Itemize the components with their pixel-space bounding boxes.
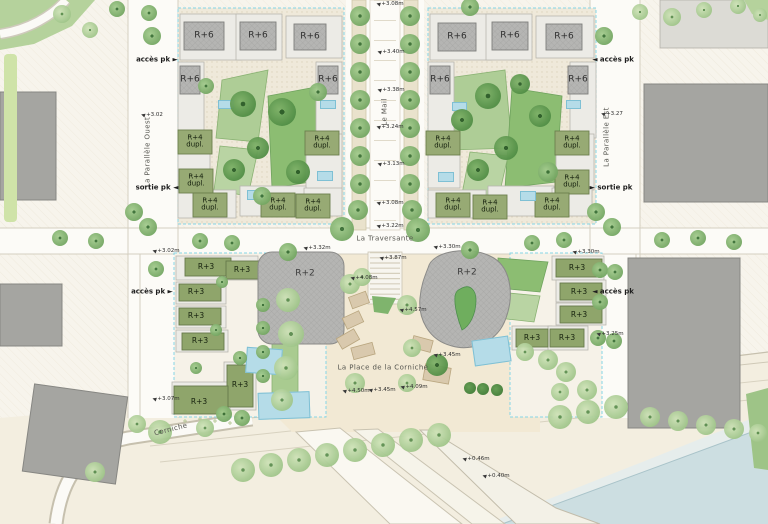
tree [654, 232, 670, 248]
tree [143, 27, 161, 45]
building-label-r6: R+6 [248, 31, 268, 40]
spot-elevation: +3.30m [572, 249, 599, 255]
spot-elevation: +3.32m [303, 245, 330, 251]
parking-access-label: ► sortie pk [590, 184, 633, 191]
elevation-marker-icon [377, 49, 382, 54]
elevation-value: +4.08m [355, 275, 377, 281]
building-label-r3: R+3 [188, 312, 204, 320]
building-label-r6: R+6 [180, 75, 200, 84]
building-label-r4: R+4 dupl. [563, 136, 581, 151]
elevation-value: +3.02m [157, 248, 179, 254]
street-name-parallele-ouest: La Parallèle Ouest [144, 117, 151, 187]
tree [231, 458, 255, 482]
tree [494, 136, 518, 160]
building-label-r3: R+3 [192, 337, 208, 345]
elevation-value: +3.32m [308, 245, 330, 251]
building-label-r3: R+3 [234, 266, 250, 274]
spot-elevation: +3.08m [376, 200, 403, 206]
elevation-marker-icon [377, 87, 382, 92]
tree [216, 406, 232, 422]
elevation-marker-icon [482, 473, 487, 478]
elevation-value: +3.27 [606, 111, 623, 117]
building-label-r4: R+4 dupl. [434, 136, 452, 151]
parking-access-label: accès pk ► [131, 288, 173, 295]
tree [53, 5, 71, 23]
tree [343, 438, 367, 462]
tree [753, 8, 767, 22]
tree [348, 200, 368, 220]
elevation-value: +3.87m [384, 255, 406, 261]
tree [148, 261, 164, 277]
tree [696, 2, 712, 18]
tree [529, 105, 551, 127]
tree [556, 362, 576, 382]
tree [724, 419, 744, 439]
building-label-r3: R+3 [198, 263, 214, 271]
elevation-value: +0.46m [467, 456, 489, 462]
building-label-r3: R+3 [559, 334, 575, 342]
tree [247, 137, 269, 159]
swimming-pool [566, 100, 581, 109]
elevation-value: +3.45m [373, 387, 395, 393]
building-label-r4: R+4 dupl. [269, 198, 287, 213]
elevation-marker-icon [303, 245, 308, 250]
swimming-pool [438, 172, 454, 182]
parking-access-label: ◄ accès pk [592, 288, 634, 295]
tree [400, 6, 420, 26]
tree [276, 288, 300, 312]
elevation-marker-icon [399, 307, 404, 312]
tree [576, 400, 600, 424]
tree [268, 98, 296, 126]
tree [538, 162, 558, 182]
tree [230, 91, 256, 117]
spot-elevation: +3.08m [376, 1, 403, 7]
street-name-la-traversante: La Traversante [356, 235, 413, 242]
elevation-value: +3.45m [438, 352, 460, 358]
tree [464, 382, 476, 394]
spot-elevation: +3.27 [601, 111, 623, 117]
tree [330, 217, 354, 241]
tree [350, 6, 370, 26]
elevation-value: +4.50m [347, 388, 369, 394]
elevation-value: +3.08m [381, 1, 403, 7]
tree [371, 433, 395, 457]
tree [224, 235, 240, 251]
tree [524, 235, 540, 251]
elevation-value: +3.07m [157, 396, 179, 402]
tree [216, 276, 228, 288]
swimming-pool [471, 336, 511, 367]
tree [190, 362, 202, 374]
building-label-r6: R+6 [500, 31, 520, 40]
spot-elevation: +3.40m [377, 49, 404, 55]
spot-elevation: +4.09m [400, 384, 427, 390]
tree [350, 118, 370, 138]
parking-access-label: sortie pk ◄ [136, 184, 179, 191]
tree [256, 298, 270, 312]
building-label-r6: R+6 [447, 32, 467, 41]
elevation-marker-icon [350, 275, 355, 280]
tree [491, 384, 503, 396]
elevation-marker-icon [152, 248, 157, 253]
swimming-pool [520, 191, 536, 201]
tree [350, 34, 370, 54]
tree [690, 230, 706, 246]
building-label-r6: R+6 [430, 75, 450, 84]
masterplan-canvas: La Parallèle OuestLe MailLa Parallèle Es… [0, 0, 768, 524]
building-label-r6: R+6 [194, 31, 214, 40]
swimming-pool [320, 100, 336, 109]
building-label-r6: R+6 [568, 75, 588, 84]
tree [548, 405, 572, 429]
tree [640, 407, 660, 427]
elevation-marker-icon [572, 249, 577, 254]
tree [402, 200, 422, 220]
building-label-r4: R+4 dupl. [481, 200, 499, 215]
elevation-marker-icon [376, 1, 381, 6]
tree [696, 415, 716, 435]
elevation-value: +3.24m [381, 124, 403, 130]
building-label-r3: R+3 [571, 311, 587, 319]
spot-elevation: +3.24m [376, 124, 403, 130]
tree [604, 395, 628, 419]
tree [603, 218, 621, 236]
elevation-value: +3.13m [382, 161, 404, 167]
tree [82, 22, 98, 38]
tree [192, 233, 208, 249]
tree [592, 294, 608, 310]
building-label-r2: R+2 [295, 269, 315, 278]
elevation-value: +4.09m [405, 384, 427, 390]
tree [400, 90, 420, 110]
spot-elevation: +0.46m [462, 456, 489, 462]
tree [234, 410, 250, 426]
tree [88, 233, 104, 249]
tree [577, 380, 597, 400]
tree [256, 369, 270, 383]
building-label-r3: R+3 [232, 381, 248, 389]
tree [210, 324, 222, 336]
tree [85, 462, 105, 482]
spot-elevation: +4.57m [399, 307, 426, 313]
elevation-marker-icon [376, 200, 381, 205]
tree [400, 174, 420, 194]
tree [196, 419, 214, 437]
spot-elevation: +3.07m [152, 396, 179, 402]
tree [271, 389, 293, 411]
tree [461, 241, 479, 259]
tree [287, 448, 311, 472]
tree [223, 159, 245, 181]
tree [595, 27, 613, 45]
building-label-r4: R+4 dupl. [563, 175, 581, 190]
tree [125, 203, 143, 221]
elevation-marker-icon [462, 456, 467, 461]
tree [286, 160, 310, 184]
tree [233, 351, 247, 365]
spot-elevation: +3.25m [596, 331, 623, 337]
tree [556, 232, 572, 248]
tree [350, 146, 370, 166]
spot-elevation: +3.22m [376, 223, 403, 229]
building-label-r4: R+4 dupl. [186, 135, 204, 150]
tree [538, 350, 558, 370]
tree [350, 62, 370, 82]
building-label-r4: R+4 dupl. [201, 198, 219, 213]
building-label-r3: R+3 [569, 264, 585, 272]
tree [749, 424, 767, 442]
building-label-r6: R+6 [554, 32, 574, 41]
tree [350, 90, 370, 110]
street-name-place-corniche: La Place de la Corniche [338, 364, 429, 371]
spot-elevation: +3.45m [433, 352, 460, 358]
building-label-r4: R+4 dupl. [313, 136, 331, 151]
tree [141, 5, 157, 21]
elevation-marker-icon [376, 223, 381, 228]
elevation-value: +3.30m [577, 249, 599, 255]
spot-elevation: +3.38m [377, 87, 404, 93]
building-label-r3: R+3 [524, 334, 540, 342]
spot-elevation: +3.13m [377, 161, 404, 167]
elevation-marker-icon [377, 161, 382, 166]
building-label-r6: R+6 [318, 75, 338, 84]
tree [510, 74, 530, 94]
elevation-value: +3.25m [601, 331, 623, 337]
spot-elevation: +3.02 [141, 112, 163, 118]
tree [726, 234, 742, 250]
spot-elevation: +4.08m [350, 275, 377, 281]
tree [475, 83, 501, 109]
building-label-r3: R+3 [571, 288, 587, 296]
elevation-marker-icon [376, 124, 381, 129]
tree [315, 443, 339, 467]
tree [350, 174, 370, 194]
tree [259, 453, 283, 477]
tree [139, 218, 157, 236]
tree [309, 83, 327, 101]
tree [278, 321, 304, 347]
elevation-value: +4.57m [404, 307, 426, 313]
tree [592, 262, 608, 278]
tree [587, 203, 605, 221]
tree [467, 159, 489, 181]
tree [52, 230, 68, 246]
building-label-r4: R+4 dupl. [543, 198, 561, 213]
elevation-marker-icon [601, 111, 606, 116]
tree [551, 383, 569, 401]
tree [427, 423, 451, 447]
building-label-r3: R+3 [191, 398, 207, 406]
elevation-value: +0.40m [487, 473, 509, 479]
tree [279, 243, 297, 261]
spot-elevation: +0.40m [482, 473, 509, 479]
elevation-marker-icon [342, 388, 347, 393]
parking-access-label: accès pk ► [136, 56, 178, 63]
building-label-r6: R+6 [300, 32, 320, 41]
tree [256, 321, 270, 335]
tree [477, 383, 489, 395]
spot-elevation: +4.50m [342, 388, 369, 394]
elevation-value: +3.40m [382, 49, 404, 55]
tree [274, 356, 298, 380]
tree [632, 4, 648, 20]
spot-elevation: +3.02m [152, 248, 179, 254]
building-label-r4: R+4 dupl. [187, 174, 205, 189]
tree [198, 78, 214, 94]
elevation-value: +3.38m [382, 87, 404, 93]
building-label-r2: R+2 [457, 268, 477, 277]
spot-elevation: +3.45m [368, 387, 395, 393]
tree [516, 343, 534, 361]
tree [668, 411, 688, 431]
tree [109, 1, 125, 17]
tree [403, 339, 421, 357]
building-label-r3: R+3 [188, 288, 204, 296]
tree [451, 109, 473, 131]
elevation-value: +3.22m [381, 223, 403, 229]
spot-elevation: +3.30m [433, 244, 460, 250]
elevation-value: +3.30m [438, 244, 460, 250]
tree [663, 8, 681, 26]
building-label-r4: R+4 dupl. [444, 198, 462, 213]
spot-elevation: +3.87m [379, 255, 406, 261]
elevation-marker-icon [596, 331, 601, 336]
tree [400, 62, 420, 82]
street-name-le-mail: Le Mail [381, 98, 388, 125]
elevation-value: +3.08m [381, 200, 403, 206]
swimming-pool [317, 171, 333, 181]
tree [607, 264, 623, 280]
elevation-marker-icon [433, 352, 438, 357]
tree [256, 345, 270, 359]
elevation-marker-icon [141, 112, 146, 117]
west-green-strip [4, 54, 17, 222]
tree [128, 415, 146, 433]
elevation-value: +3.02 [146, 112, 163, 118]
elevation-marker-icon [400, 384, 405, 389]
elevation-marker-icon [379, 255, 384, 260]
building-label-r4: R+4 dupl. [304, 199, 322, 214]
tree [399, 428, 423, 452]
parking-access-label: ◄ accès pk [592, 56, 634, 63]
elevation-marker-icon [152, 396, 157, 401]
elevation-marker-icon [433, 244, 438, 249]
